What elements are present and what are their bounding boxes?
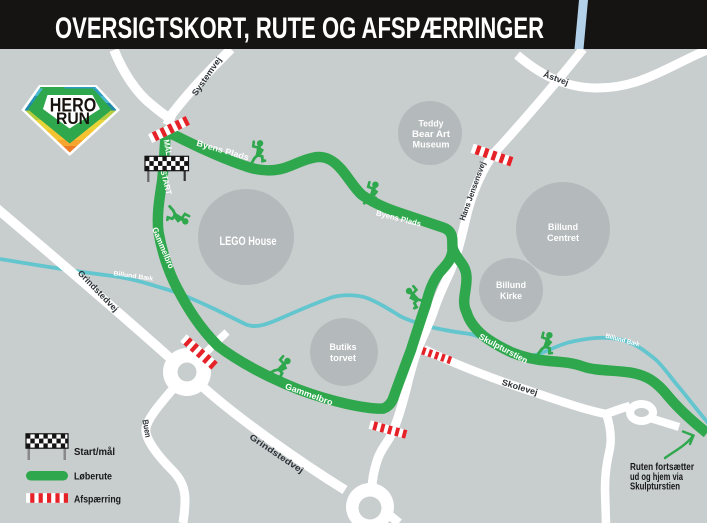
svg-text:LEGO House: LEGO House bbox=[220, 234, 277, 248]
svg-text:Teddy: Teddy bbox=[419, 119, 444, 129]
svg-text:Billund: Billund bbox=[548, 222, 578, 233]
svg-text:Billund: Billund bbox=[496, 280, 526, 291]
svg-text:Afspærring: Afspærring bbox=[74, 495, 121, 506]
svg-text:Butiks: Butiks bbox=[330, 342, 357, 353]
svg-text:Bear Art: Bear Art bbox=[412, 129, 450, 139]
svg-text:Museum: Museum bbox=[413, 140, 450, 150]
svg-text:OVERSIGTSKORT, RUTE OG AFSPÆRR: OVERSIGTSKORT, RUTE OG AFSPÆRRINGER bbox=[55, 12, 544, 45]
svg-text:Skulpturstien: Skulpturstien bbox=[630, 482, 680, 493]
svg-text:Start/mål: Start/mål bbox=[74, 446, 115, 458]
svg-text:Centret: Centret bbox=[547, 233, 580, 244]
svg-text:Løberute: Løberute bbox=[74, 472, 112, 483]
svg-text:RUN: RUN bbox=[56, 110, 90, 128]
svg-text:Kirke: Kirke bbox=[500, 291, 522, 302]
svg-text:torvet: torvet bbox=[330, 353, 357, 364]
